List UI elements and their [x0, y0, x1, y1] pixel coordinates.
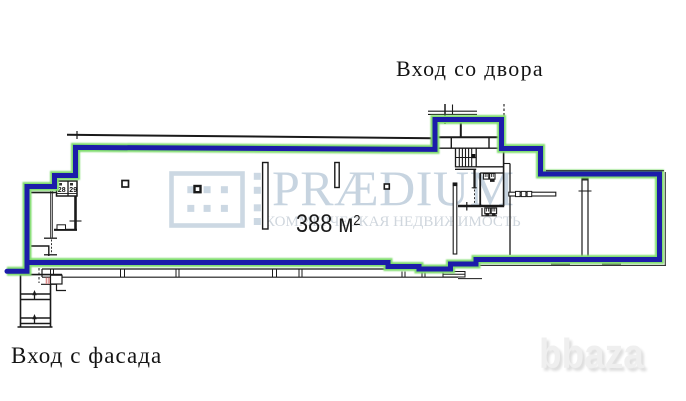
svg-text:29: 29	[69, 187, 77, 194]
svg-text:PRÆDIUM: PRÆDIUM	[272, 160, 514, 216]
